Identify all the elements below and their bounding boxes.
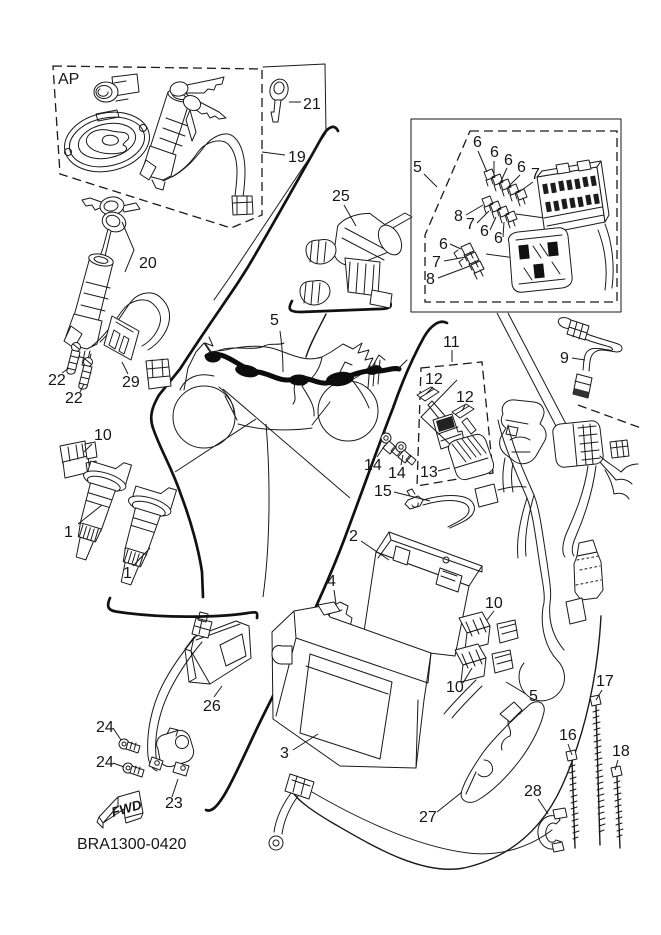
svg-text:6: 6 xyxy=(494,230,503,247)
svg-text:27: 27 xyxy=(419,809,437,826)
svg-text:1: 1 xyxy=(64,524,73,541)
svg-text:5: 5 xyxy=(270,312,279,329)
svg-text:24: 24 xyxy=(96,719,114,736)
svg-text:10: 10 xyxy=(485,595,503,612)
svg-text:14: 14 xyxy=(388,465,406,482)
svg-text:6: 6 xyxy=(504,152,513,169)
svg-text:8: 8 xyxy=(426,271,435,288)
svg-text:15: 15 xyxy=(374,483,392,500)
svg-text:22: 22 xyxy=(48,372,66,389)
svg-text:2: 2 xyxy=(349,528,358,545)
svg-text:24: 24 xyxy=(96,754,114,771)
svg-text:7: 7 xyxy=(432,254,441,271)
svg-text:5: 5 xyxy=(413,159,422,176)
svg-text:AP: AP xyxy=(58,71,79,88)
svg-text:22: 22 xyxy=(65,390,83,407)
svg-text:1: 1 xyxy=(123,565,132,582)
svg-text:28: 28 xyxy=(524,783,542,800)
svg-text:12: 12 xyxy=(456,389,474,406)
svg-text:25: 25 xyxy=(332,188,350,205)
svg-text:10: 10 xyxy=(446,679,464,696)
svg-text:19: 19 xyxy=(288,149,306,166)
svg-text:17: 17 xyxy=(596,673,614,690)
svg-text:8: 8 xyxy=(454,208,463,225)
svg-text:18: 18 xyxy=(612,743,630,760)
svg-text:20: 20 xyxy=(139,255,157,272)
svg-text:6: 6 xyxy=(473,134,482,151)
svg-text:10: 10 xyxy=(94,427,112,444)
svg-text:26: 26 xyxy=(203,698,221,715)
svg-text:6: 6 xyxy=(439,236,448,253)
svg-text:4: 4 xyxy=(327,573,336,590)
svg-text:6: 6 xyxy=(480,223,489,240)
svg-text:11: 11 xyxy=(443,334,460,351)
svg-text:6: 6 xyxy=(517,159,526,176)
svg-text:9: 9 xyxy=(560,350,569,367)
svg-text:23: 23 xyxy=(165,795,183,812)
svg-text:29: 29 xyxy=(122,374,140,391)
svg-text:BRA1300-0420: BRA1300-0420 xyxy=(77,836,187,853)
svg-text:7: 7 xyxy=(466,216,475,233)
svg-text:6: 6 xyxy=(490,144,499,161)
svg-text:3: 3 xyxy=(280,745,289,762)
svg-text:14: 14 xyxy=(364,457,382,474)
svg-text:12: 12 xyxy=(425,371,443,388)
svg-text:21: 21 xyxy=(303,96,321,113)
svg-text:13: 13 xyxy=(420,464,438,481)
svg-text:16: 16 xyxy=(559,727,577,744)
